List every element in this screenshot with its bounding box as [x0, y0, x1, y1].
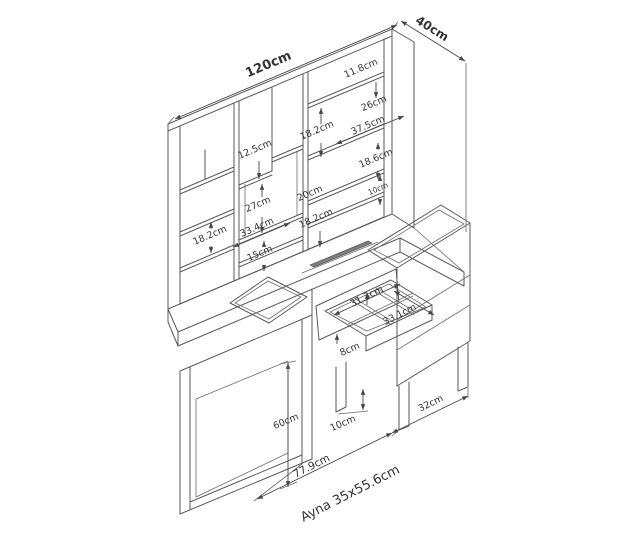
furniture-dimension-drawing: 120cm 40cm 11.8cm 26cm 37.5cm 18.6cm 10c… — [0, 0, 640, 538]
dimension-labels: 120cm 40cm 11.8cm 26cm 37.5cm 18.6cm 10c… — [191, 13, 451, 525]
dim-label-total-width: 120cm — [243, 48, 293, 81]
dim-label-mid-bottom: 15cm — [246, 243, 275, 264]
dim-label-right-width: 37.5cm — [349, 114, 386, 138]
dim-label-right-mid: 18.6cm — [357, 147, 394, 171]
dim-label-mid-top-right: 18.2cm — [298, 119, 335, 143]
dim-label-total-depth: 40cm — [413, 13, 451, 44]
dimension-lines — [168, 21, 468, 501]
dim-label-cabinet-depth: 32cm — [417, 393, 446, 415]
dim-label-mid-box: 27cm — [244, 194, 273, 215]
product-mirror-note: Ayna 35x55.6cm — [298, 462, 402, 525]
isometric-drawing: 120cm 40cm 11.8cm 26cm 37.5cm 18.6cm 10c… — [0, 0, 640, 538]
dim-label-left-cell: 18.2cm — [191, 224, 228, 248]
dim-label-right-top: 11.8cm — [342, 57, 379, 81]
dim-label-leg-height: 10cm — [329, 413, 358, 434]
dim-label-mid-depth: 20cm — [296, 183, 325, 204]
dim-label-drawer-front: 8cm — [338, 341, 361, 359]
dim-label-mid-top-left: 12.5cm — [236, 138, 273, 162]
dim-label-table-height: 60cm — [272, 411, 301, 432]
hutch-shelf-unit — [168, 29, 414, 309]
